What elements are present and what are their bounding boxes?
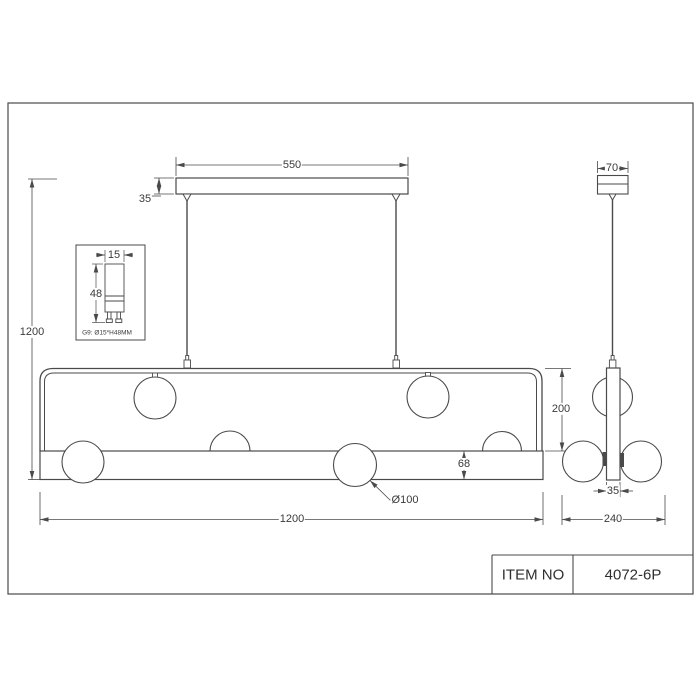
drawing-border [8, 103, 693, 594]
dim-bar-height: 68 [457, 458, 471, 470]
side-bar [607, 368, 621, 480]
frame-inner [45, 373, 537, 451]
dim-canopy-width: 550 [282, 159, 302, 171]
dim-side-canopy-width: 70 [605, 162, 619, 174]
spec-sheet: 550 35 1200 200 68 Ø100 1200 70 35 240 1… [0, 0, 700, 700]
dim-35-canopy-lines [151, 178, 174, 196]
globe-tab-right [620, 453, 625, 467]
dim-drop-height: 1200 [19, 326, 45, 338]
front-canopy [176, 178, 408, 194]
item-no-value: 4072-6P [605, 567, 662, 584]
side-view [562, 161, 665, 525]
side-connector-neck [611, 356, 614, 361]
dim-side-total-width: 240 [603, 513, 623, 525]
frame-outer [40, 369, 542, 452]
dim-canopy-height: 35 [138, 193, 152, 205]
bulb-caption: G9: Ø15*H48MM [81, 329, 133, 336]
dim-bulb-height: 48 [89, 288, 103, 300]
globe-tab-left [603, 452, 608, 466]
front-view [28, 157, 571, 525]
globe-hanging-left [134, 377, 176, 419]
dim-globe-diameter: Ø100 [391, 494, 420, 506]
side-canopy [598, 176, 629, 195]
side-globe-left [563, 441, 604, 482]
side-globe-right [621, 441, 662, 482]
dim-fixture-width: 1200 [279, 513, 305, 525]
dim-frame-height: 200 [551, 403, 571, 415]
globe-on-bar-center [334, 444, 377, 487]
technical-drawing [0, 0, 700, 700]
dim-bulb-width: 15 [107, 249, 121, 261]
item-no-label: ITEM NO [502, 567, 565, 584]
globe-hanging-right [407, 376, 449, 418]
suspension-wires [183, 194, 400, 368]
side-connector [609, 360, 616, 368]
dim-side-bar-width: 35 [606, 485, 620, 497]
globe-on-bar-left [62, 441, 104, 483]
